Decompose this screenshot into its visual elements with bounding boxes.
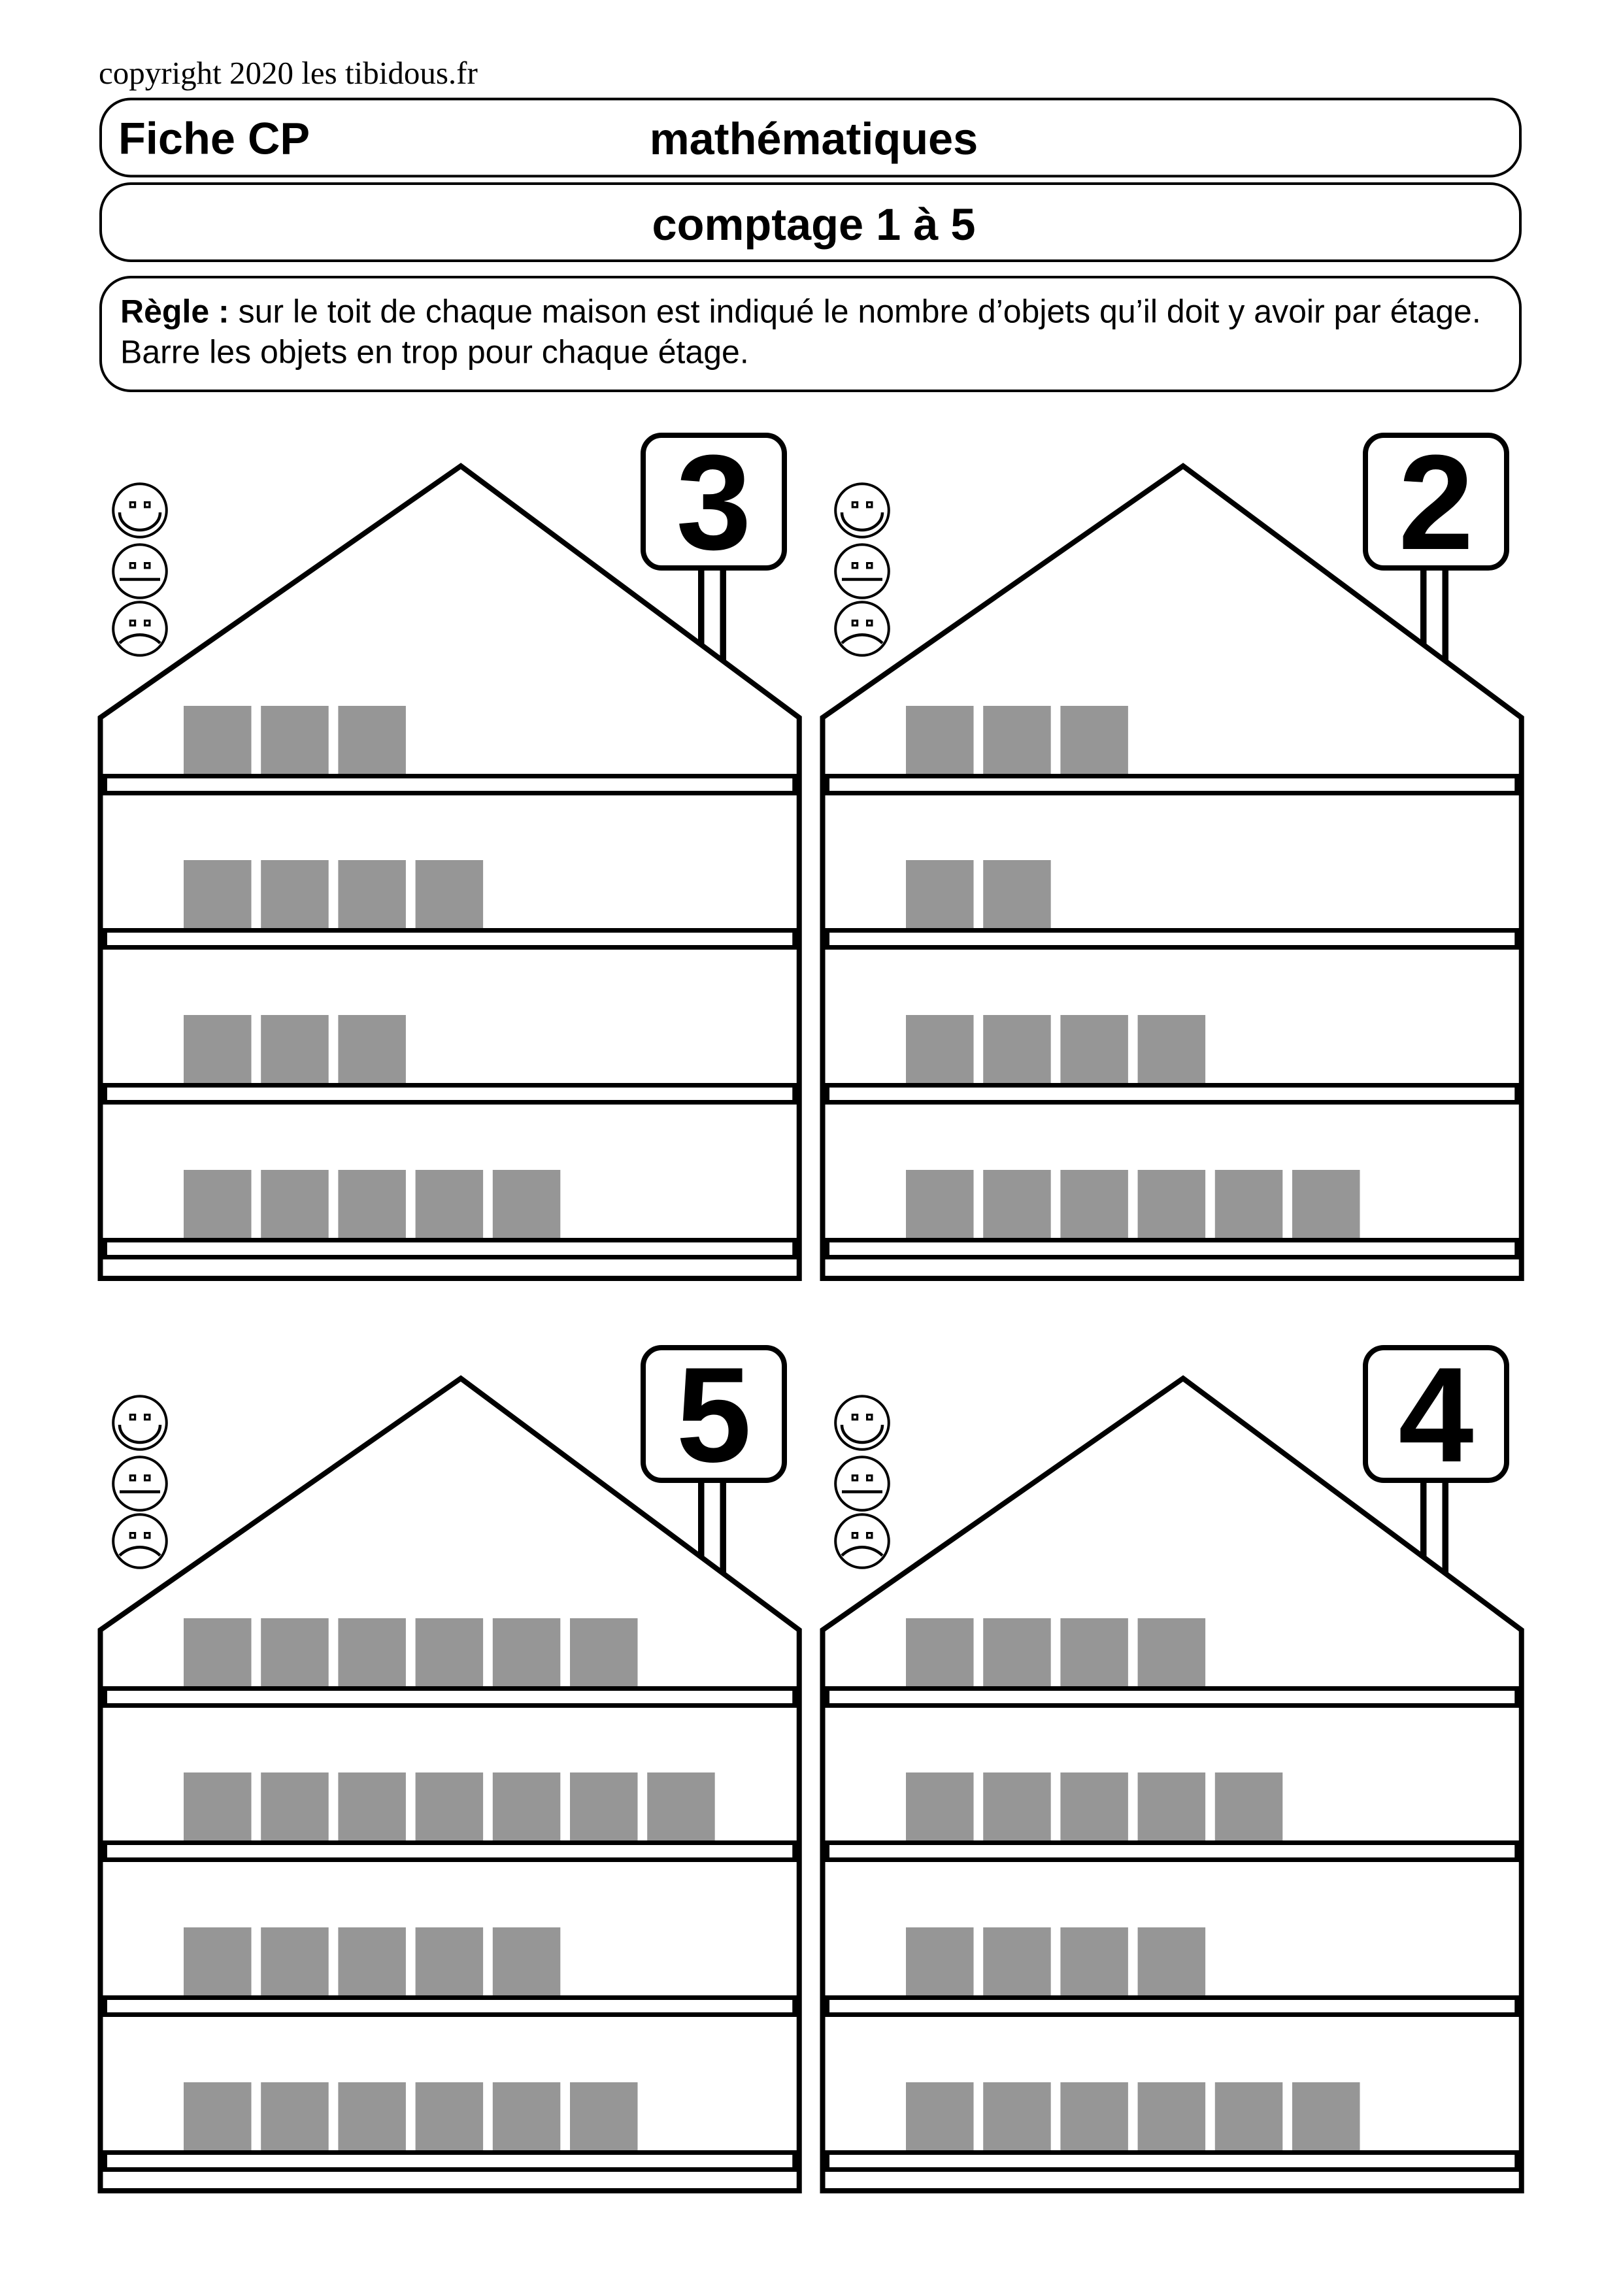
svg-text:2: 2	[1398, 427, 1473, 578]
svg-text:3: 3	[676, 427, 751, 578]
svg-text:mathématiques: mathématiques	[650, 114, 978, 164]
svg-text:comptage 1 à 5: comptage 1 à 5	[652, 199, 976, 250]
svg-text:5: 5	[676, 1339, 751, 1490]
svg-text:4: 4	[1398, 1339, 1473, 1490]
svg-text:copyright 2020 les tibidous.fr: copyright 2020 les tibidous.fr	[99, 55, 478, 91]
svg-text:Règle : sur le toit de chaque: Règle : sur le toit de chaque maison est…	[120, 293, 1481, 330]
svg-text:Fiche CP: Fiche CP	[118, 114, 310, 164]
svg-text:Barre les objets en trop pour: Barre les objets en trop pour chaque éta…	[120, 334, 749, 371]
